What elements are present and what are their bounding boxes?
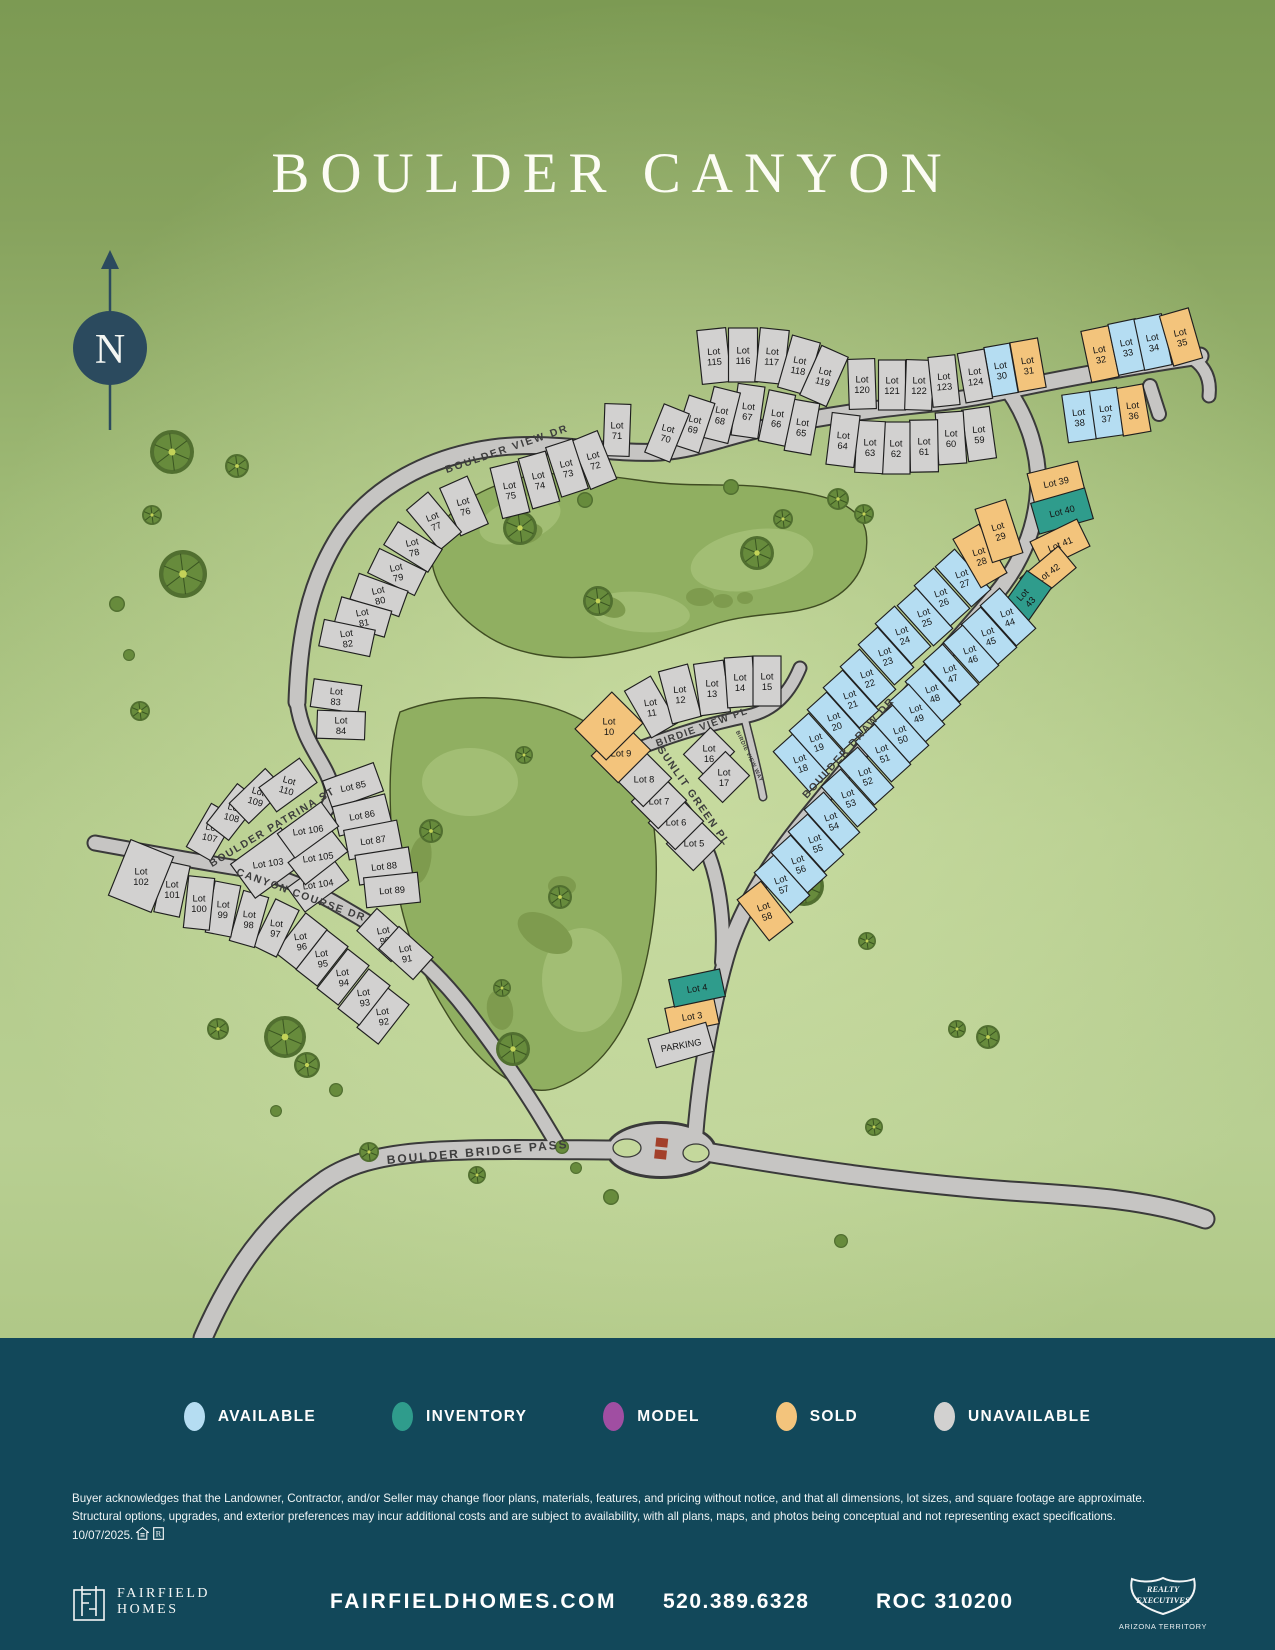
compass-n-label: N bbox=[95, 327, 125, 373]
legend-item-model: MODEL bbox=[603, 1402, 699, 1431]
legend: AVAILABLEINVENTORYMODELSOLDUNAVAILABLE bbox=[0, 1338, 1275, 1431]
lot-label: Lot62 bbox=[890, 439, 903, 460]
website-link[interactable]: FAIRFIELDHOMES.COM bbox=[330, 1590, 617, 1614]
tree bbox=[548, 885, 572, 909]
lot-label: Lot15 bbox=[761, 672, 774, 693]
lot-61: Lot61 bbox=[910, 420, 939, 472]
lot-label: Lot120 bbox=[854, 375, 870, 396]
svg-text:REALTY: REALTY bbox=[1146, 1584, 1180, 1594]
site-map: BOULDER CANYON N bbox=[0, 0, 1275, 1338]
footer-contact-row: FAIRFIELD HOMES FAIRFIELDHOMES.COM 520.3… bbox=[0, 1582, 1275, 1642]
legend-swatch-model bbox=[603, 1402, 624, 1431]
lot-120: Lot120 bbox=[848, 359, 877, 410]
lot-label: Lot10 bbox=[603, 717, 616, 738]
legend-swatch-available bbox=[184, 1402, 205, 1431]
disclaimer: Buyer acknowledges that the Landowner, C… bbox=[72, 1490, 1154, 1547]
lot-label: Lot63 bbox=[864, 438, 877, 459]
lot-label: Lot 8 bbox=[634, 775, 655, 785]
lot-63: Lot63 bbox=[855, 420, 886, 473]
fh-monogram-icon bbox=[72, 1584, 108, 1622]
legend-swatch-unavailable bbox=[934, 1402, 955, 1431]
legend-item-unavailable: UNAVAILABLE bbox=[934, 1402, 1091, 1431]
lot-label: Lot71 bbox=[611, 421, 624, 442]
legend-label-inventory: INVENTORY bbox=[426, 1408, 527, 1426]
legend-item-available: AVAILABLE bbox=[184, 1402, 316, 1431]
tree bbox=[142, 505, 162, 525]
lot-14: Lot14 bbox=[724, 656, 755, 708]
tree bbox=[150, 430, 194, 474]
tree bbox=[123, 649, 135, 661]
realty-shield-icon: REALTY EXECUTIVES bbox=[1126, 1576, 1200, 1616]
legend-item-inventory: INVENTORY bbox=[392, 1402, 527, 1431]
tree bbox=[270, 1105, 282, 1117]
tree bbox=[723, 479, 739, 495]
tree bbox=[773, 509, 793, 529]
lot-116: Lot116 bbox=[729, 328, 758, 382]
lot-label: Lot17 bbox=[718, 768, 731, 789]
tree bbox=[225, 454, 249, 478]
brand-line2: HOMES bbox=[117, 1602, 210, 1618]
tree bbox=[130, 701, 150, 721]
tree bbox=[468, 1166, 486, 1184]
brand-line1: FAIRFIELD bbox=[117, 1586, 210, 1602]
lot-label: Lot60 bbox=[945, 429, 958, 450]
lot-83: Lot83 bbox=[310, 679, 361, 713]
lot-89: Lot 89 bbox=[364, 872, 421, 907]
legend-label-model: MODEL bbox=[637, 1408, 699, 1426]
tree bbox=[570, 1162, 582, 1174]
tree bbox=[109, 596, 125, 612]
lot-label: Lot13 bbox=[706, 679, 719, 700]
disclaimer-text: Buyer acknowledges that the Landowner, C… bbox=[72, 1492, 1145, 1543]
tree bbox=[419, 819, 443, 843]
lot-label: Lot101 bbox=[164, 880, 180, 901]
page-title: BOULDER CANYON bbox=[271, 142, 952, 205]
lot-label: Lot117 bbox=[764, 346, 780, 367]
legend-label-sold: SOLD bbox=[810, 1408, 858, 1426]
lot-84: Lot84 bbox=[317, 710, 366, 740]
lot-label: Lot 5 bbox=[684, 839, 705, 849]
realtor-icon: R bbox=[153, 1527, 164, 1540]
lot-label: Lot121 bbox=[884, 376, 900, 397]
tree bbox=[976, 1025, 1000, 1049]
equal-housing-icon bbox=[136, 1527, 149, 1540]
tree bbox=[603, 1189, 619, 1205]
lot-121: Lot121 bbox=[879, 360, 906, 410]
lot-71: Lot71 bbox=[603, 404, 631, 457]
footer-panel: AVAILABLEINVENTORYMODELSOLDUNAVAILABLE B… bbox=[0, 1338, 1275, 1650]
legend-item-sold: SOLD bbox=[776, 1402, 858, 1431]
lot-64: Lot64 bbox=[826, 412, 860, 467]
lot-62: Lot62 bbox=[882, 422, 910, 474]
lot-60: Lot60 bbox=[935, 411, 967, 465]
tree bbox=[496, 1032, 530, 1066]
lot-label: Lot 6 bbox=[666, 818, 687, 828]
tree bbox=[854, 504, 874, 524]
legend-swatch-sold bbox=[776, 1402, 797, 1431]
lot-115: Lot115 bbox=[697, 328, 731, 385]
lot-label: Lot14 bbox=[734, 673, 747, 694]
lot-38: Lot38 bbox=[1062, 391, 1096, 442]
tree bbox=[264, 1016, 306, 1058]
roundabout-island bbox=[683, 1144, 709, 1162]
fairfield-homes-logo: FAIRFIELD HOMES bbox=[72, 1584, 210, 1622]
tree bbox=[207, 1018, 229, 1040]
tree bbox=[329, 1083, 343, 1097]
roc-number: ROC 310200 bbox=[876, 1590, 1014, 1614]
legend-swatch-inventory bbox=[392, 1402, 413, 1431]
lot-label: Lot116 bbox=[736, 346, 751, 367]
tree bbox=[948, 1020, 966, 1038]
svg-text:EXECUTIVES: EXECUTIVES bbox=[1135, 1595, 1190, 1605]
lot-label: Lot61 bbox=[918, 437, 931, 458]
flyer-page: BOULDER CANYON N bbox=[0, 0, 1275, 1650]
tree bbox=[577, 492, 593, 508]
tree bbox=[740, 536, 774, 570]
lot-15: Lot15 bbox=[753, 656, 781, 706]
lot-label: Lot122 bbox=[911, 376, 927, 397]
tree bbox=[359, 1142, 379, 1162]
phone-number: 520.389.6328 bbox=[663, 1590, 809, 1614]
lot-label: Lot123 bbox=[936, 371, 953, 393]
lot-label: Lot84 bbox=[335, 716, 348, 737]
tree bbox=[294, 1052, 320, 1078]
tree bbox=[493, 979, 511, 997]
svg-text:R: R bbox=[155, 1529, 161, 1539]
tree bbox=[515, 746, 533, 764]
lot-label: Lot102 bbox=[133, 867, 149, 888]
tree bbox=[834, 1234, 848, 1248]
lot-label: Lot115 bbox=[706, 346, 722, 367]
tree bbox=[865, 1118, 883, 1136]
lot-label: Lot100 bbox=[191, 894, 207, 915]
legend-label-unavailable: UNAVAILABLE bbox=[968, 1408, 1091, 1426]
legend-label-available: AVAILABLE bbox=[218, 1408, 316, 1426]
realty-territory: ARIZONA TERRITORY bbox=[1108, 1622, 1218, 1631]
lot-label: Lot16 bbox=[703, 744, 716, 765]
tree bbox=[827, 488, 849, 510]
tree bbox=[583, 586, 613, 616]
tree bbox=[159, 550, 207, 598]
tree bbox=[858, 932, 876, 950]
lot-100: Lot100 bbox=[183, 876, 214, 930]
realty-executives-logo: REALTY EXECUTIVES ARIZONA TERRITORY bbox=[1108, 1576, 1218, 1631]
roundabout-island bbox=[613, 1139, 641, 1157]
lot-label: Lot 89 bbox=[379, 885, 405, 897]
lot-123: Lot123 bbox=[928, 355, 960, 408]
